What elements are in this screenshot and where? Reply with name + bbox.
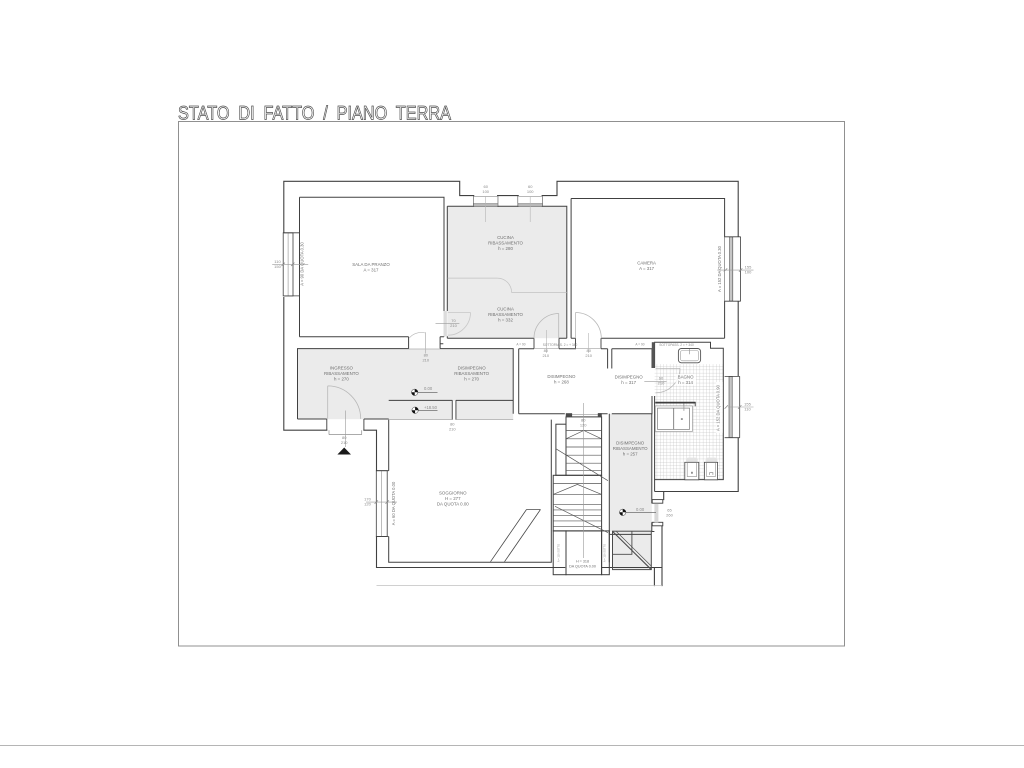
- svg-text:A = 317: A = 317: [639, 266, 655, 271]
- svg-text:210: 210: [449, 427, 456, 432]
- svg-text:RIBASSAMENTO: RIBASSAMENTO: [488, 312, 523, 317]
- svg-text:DA QUOTA 0.00: DA QUOTA 0.00: [569, 565, 596, 569]
- svg-text:SOTTOPASS. 2 = + 340: SOTTOPASS. 2 = + 340: [659, 343, 694, 347]
- svg-text:CUCINA: CUCINA: [497, 307, 514, 312]
- svg-text:DISIMPEGNO: DISIMPEGNO: [547, 374, 576, 379]
- svg-text:A = 90 DA QUOTA 0.30: A = 90 DA QUOTA 0.30: [300, 242, 305, 286]
- svg-text:120: 120: [580, 423, 587, 428]
- svg-text:110: 110: [744, 407, 751, 412]
- svg-text:A = 152 DA QUOTA 0.90: A = 152 DA QUOTA 0.90: [715, 384, 720, 431]
- svg-text:DA QUOTA 0.00: DA QUOTA 0.00: [437, 502, 469, 507]
- svg-text:SALA DA PRANZO: SALA DA PRANZO: [352, 262, 390, 267]
- svg-text:DISIMPEGNO: DISIMPEGNO: [615, 375, 644, 380]
- svg-text:h = 270: h = 270: [334, 377, 349, 382]
- svg-text:SOTTOPASS. 2 = + 340: SOTTOPASS. 2 = + 340: [543, 343, 578, 347]
- svg-text:100: 100: [745, 270, 752, 275]
- svg-text:0.00: 0.00: [424, 386, 433, 391]
- svg-text:DISIMPEGNO: DISIMPEGNO: [616, 441, 645, 446]
- svg-text:H = 318: H = 318: [576, 560, 589, 564]
- svg-text:A = 110 SOTTO: A = 110 SOTTO: [557, 544, 561, 562]
- svg-text:A = 90: A = 90: [635, 343, 644, 347]
- svg-text:RIBASSAMENTO: RIBASSAMENTO: [454, 371, 489, 376]
- svg-text:H = 277: H = 277: [445, 496, 461, 501]
- svg-text:210: 210: [658, 381, 665, 386]
- svg-text:210: 210: [422, 358, 429, 363]
- svg-text:A = 60 DA QUOTA 0.00: A = 60 DA QUOTA 0.00: [391, 481, 396, 525]
- svg-text:INGRESSO: INGRESSO: [330, 366, 354, 371]
- svg-text:A = 110 SOTTO: A = 110 SOTTO: [602, 544, 606, 562]
- svg-text:A = 90: A = 90: [516, 343, 525, 347]
- svg-text:SOGGIORNO: SOGGIORNO: [439, 491, 467, 496]
- svg-text:A = 152 DA QUOTA 0.30: A = 152 DA QUOTA 0.30: [717, 245, 722, 292]
- svg-text:0.00: 0.00: [636, 507, 645, 512]
- svg-text:BAGNO: BAGNO: [678, 375, 694, 380]
- svg-text:210: 210: [341, 440, 348, 445]
- svg-text:CAMERA: CAMERA: [637, 261, 656, 266]
- svg-text:RIBASSAMENTO: RIBASSAMENTO: [488, 241, 523, 246]
- svg-text:210: 210: [450, 323, 457, 328]
- svg-text:100: 100: [482, 189, 489, 194]
- svg-text:260: 260: [666, 513, 673, 518]
- svg-text:+18.50: +18.50: [424, 405, 438, 410]
- svg-text:210: 210: [542, 353, 549, 358]
- svg-text:h = 270: h = 270: [464, 377, 479, 382]
- svg-text:RIBASSAMENTO: RIBASSAMENTO: [324, 371, 359, 376]
- svg-text:h = 257: h = 257: [623, 452, 638, 457]
- svg-text:h = 280: h = 280: [498, 246, 513, 251]
- svg-text:DISIMPEGNO: DISIMPEGNO: [458, 366, 487, 371]
- svg-text:150: 150: [274, 264, 281, 269]
- svg-text:h = 332: h = 332: [498, 318, 513, 323]
- svg-text:210: 210: [585, 353, 592, 358]
- svg-text:120: 120: [364, 502, 371, 507]
- svg-text:h = 268: h = 268: [554, 380, 569, 385]
- svg-text:RIBASSAMENTO: RIBASSAMENTO: [613, 446, 648, 451]
- svg-text:A = 317: A = 317: [363, 268, 379, 273]
- svg-text:h = 317: h = 317: [621, 380, 636, 385]
- svg-text:h = 314: h = 314: [678, 380, 693, 385]
- svg-text:100: 100: [527, 189, 534, 194]
- svg-text:CUCINA: CUCINA: [497, 235, 514, 240]
